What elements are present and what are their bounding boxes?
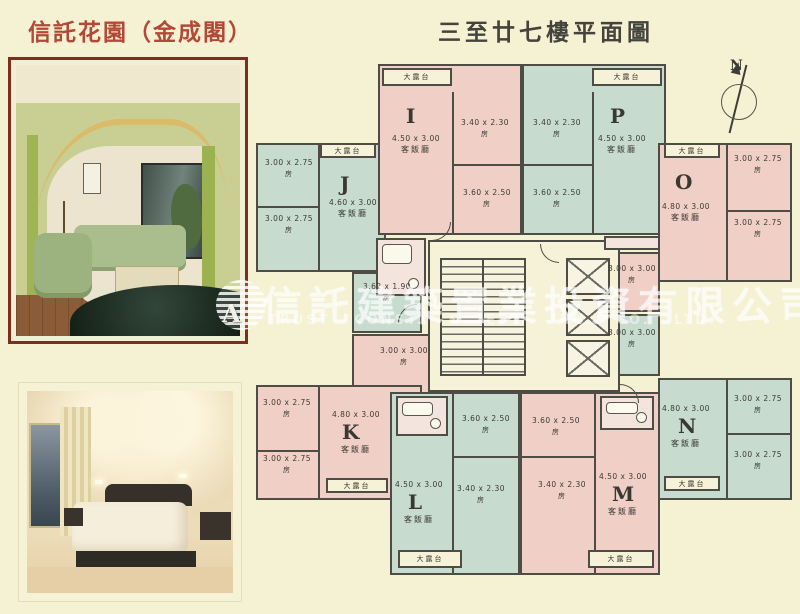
wall	[452, 164, 522, 166]
room-label: 3.40 x 2.30房	[524, 118, 590, 139]
company-logo-icon: A	[216, 280, 266, 330]
room-label: 3.00 x 3.00房	[364, 346, 444, 367]
service-block	[604, 236, 660, 250]
wall	[520, 456, 594, 458]
room-label: 3.40 x 2.30房	[452, 118, 518, 139]
living-dim-K: 4.80 x 3.00	[320, 410, 392, 419]
balcony-label: 大露台	[679, 146, 706, 156]
unit-letter-L: L	[408, 490, 422, 514]
living-label-M: 客飯廳	[590, 506, 656, 517]
wall-lamp-left	[95, 480, 103, 484]
living-dim-L: 4.50 x 3.00	[386, 480, 452, 489]
living-room-photo-frame	[8, 57, 248, 344]
balcony-label: 大露台	[335, 146, 362, 156]
room-label: 3.00 x 2.75房	[260, 214, 318, 235]
unit-letter-O: O	[675, 170, 692, 194]
nightstand-right	[200, 512, 231, 540]
wall	[522, 164, 592, 166]
room-label: 3.00 x 2.75房	[258, 454, 316, 475]
wall	[726, 210, 792, 212]
bed-duvet	[72, 502, 187, 555]
north-compass-icon: N	[710, 58, 766, 138]
estate-title: 信託花園（金成閣）	[28, 13, 253, 47]
room-label: 3.60 x 2.50房	[524, 188, 590, 209]
wall	[318, 385, 320, 500]
balcony-label: 大露台	[344, 481, 371, 491]
toilet-shape	[430, 418, 441, 429]
nightstand-left	[64, 508, 83, 526]
balcony-O: 大露台	[664, 143, 720, 158]
balcony-label: 大露台	[417, 554, 444, 564]
floor-plan: 大露台 大露台 大露台 大露台 大露台 大露台 大露台 大露台 I J P O …	[248, 56, 800, 608]
bathtub-shape	[382, 244, 412, 264]
balcony-M: 大露台	[588, 550, 654, 568]
armchair	[34, 233, 92, 298]
unit-letter-M: M	[612, 482, 634, 506]
room-label: 3.40 x 2.30房	[450, 484, 512, 505]
living-label-N: 客飯廳	[650, 438, 722, 449]
wall	[594, 392, 596, 575]
living-label-O: 客飯廳	[650, 212, 722, 223]
window	[29, 423, 62, 528]
bathtub-shape	[606, 402, 638, 414]
wall	[452, 456, 520, 458]
carpet	[27, 567, 233, 593]
room-label: 3.40 x 2.30房	[532, 480, 592, 501]
unit-letter-N: N	[678, 414, 696, 438]
living-dim-M: 4.50 x 3.00	[590, 472, 656, 481]
living-dim-P: 4.50 x 3.00	[586, 134, 658, 143]
unit-letter-I: I	[406, 104, 415, 128]
living-room-photo	[16, 65, 240, 336]
living-label-K: 客飯廳	[320, 444, 392, 455]
room-label: 3.60 x 2.50房	[454, 414, 518, 435]
balcony-P: 大露台	[592, 68, 662, 86]
wall-lamp-right	[179, 474, 187, 478]
balcony-N: 大露台	[664, 476, 720, 491]
room-label: 3.00 x 2.75房	[258, 398, 316, 419]
compass-circle	[721, 84, 757, 120]
wall	[256, 450, 320, 452]
wall	[592, 92, 594, 235]
bedroom-photo-frame	[18, 382, 242, 602]
room-label: 3.60 x 2.50房	[524, 416, 588, 437]
wall	[726, 433, 792, 435]
brochure-page: { "page": {"background": "#f5f1d3"}, "he…	[0, 0, 800, 614]
room-label: 3.00 x 2.75房	[727, 450, 789, 471]
bedroom-photo	[27, 391, 233, 593]
balcony-L: 大露台	[398, 550, 462, 568]
living-dim-N: 4.80 x 3.00	[650, 404, 722, 413]
balcony-label: 大露台	[608, 554, 635, 564]
door-arc	[620, 384, 639, 403]
balcony-K: 大露台	[326, 478, 388, 493]
door-arc	[432, 222, 451, 241]
living-dim-O: 4.80 x 3.00	[650, 202, 722, 211]
room-label: 3.60 x 2.50房	[454, 188, 520, 209]
wall	[256, 206, 320, 208]
room-label: 3.00 x 2.75房	[727, 218, 789, 239]
unit-letter-P: P	[610, 104, 625, 128]
living-label-L: 客飯廳	[386, 514, 452, 525]
unit-letter-K: K	[342, 420, 359, 444]
wall-picture	[83, 163, 101, 195]
living-dim-I: 4.50 x 3.00	[380, 134, 452, 143]
toilet-shape	[636, 412, 647, 423]
room-label: 3.00 x 2.75房	[727, 394, 789, 415]
balcony-I: 大露台	[382, 68, 452, 86]
room-label: 3.00 x 2.75房	[727, 154, 789, 175]
unit-letter-J: J	[340, 172, 349, 196]
balcony-label: 大露台	[614, 72, 641, 82]
watermark-company-name-en: TRUST CONST. & EST. INV. CO. LTD.	[268, 313, 717, 328]
floorplan-title: 三至廿七樓平面圖	[438, 13, 654, 47]
living-label-I: 客飯廳	[380, 144, 452, 155]
living-label-J: 客飯廳	[322, 208, 384, 219]
balcony-J: 大露台	[320, 143, 376, 158]
living-dim-J: 4.60 x 3.00	[322, 198, 384, 207]
bathroom-block	[396, 396, 448, 436]
living-label-P: 客飯廳	[586, 144, 658, 155]
bathtub-shape	[402, 402, 433, 416]
room-label: 3.00 x 2.75房	[260, 158, 318, 179]
balcony-label: 大露台	[679, 479, 706, 489]
balcony-label: 大露台	[404, 72, 431, 82]
